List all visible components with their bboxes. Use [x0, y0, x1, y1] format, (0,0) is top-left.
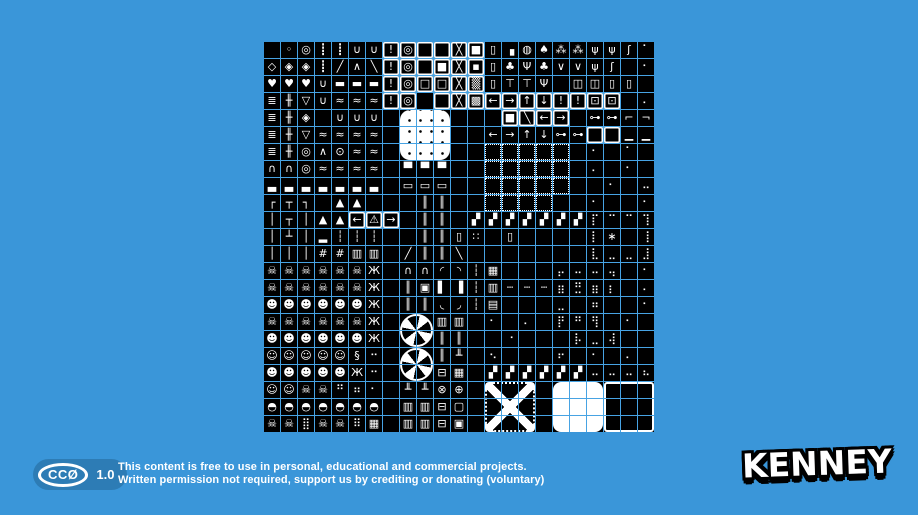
tile: ⠛ — [570, 314, 586, 330]
tile: ☠ — [332, 263, 348, 279]
tile: ▞ — [519, 212, 535, 228]
tile: ⠄ — [587, 161, 603, 177]
tile: ☺ — [298, 348, 314, 364]
tile: ⊶ — [604, 110, 620, 126]
tile: ∪ — [366, 42, 382, 58]
tile: ┄ — [536, 280, 552, 296]
tile: ⊙ — [332, 144, 348, 160]
tile: ▀ — [417, 161, 433, 177]
tile: ☻ — [332, 331, 348, 347]
tile: ⣸ — [638, 246, 654, 262]
tile: ┋ — [315, 42, 331, 58]
page: { "page": { "background": "#3a96d9" }, "… — [0, 0, 918, 515]
tile: ♠ — [536, 42, 552, 58]
tile — [621, 297, 637, 313]
tile: Ψ — [519, 59, 535, 75]
tile: ¬ — [638, 110, 654, 126]
tile: ⡟ — [553, 314, 569, 330]
tile: ⊡ — [587, 93, 603, 109]
tile — [621, 178, 637, 194]
tile: ↑ — [519, 127, 535, 143]
tile: ! — [383, 76, 399, 92]
tile: ⠤ — [587, 263, 603, 279]
tile: ┬ — [281, 195, 297, 211]
tile — [570, 229, 586, 245]
tile: → — [383, 212, 399, 228]
tile — [383, 178, 399, 194]
tile: ║ — [434, 246, 450, 262]
tile — [485, 331, 501, 347]
tile: ▃ — [332, 178, 348, 194]
tile: ▁ — [621, 127, 637, 143]
tile: ║ — [451, 331, 467, 347]
tile: ┌ — [264, 195, 280, 211]
tile: ← — [485, 93, 501, 109]
tile — [519, 229, 535, 245]
tile: ⡇ — [587, 229, 603, 245]
tile: ! — [383, 59, 399, 75]
tile: Ж — [366, 280, 382, 296]
tile: │ — [281, 246, 297, 262]
tile: ∪ — [332, 110, 348, 126]
tile — [383, 195, 399, 211]
tile: ← — [349, 212, 365, 228]
tile: ∨ — [553, 59, 569, 75]
tile: ≈ — [366, 127, 382, 143]
tile — [519, 246, 535, 262]
tile: ▭ — [417, 178, 433, 194]
tile: ◎ — [400, 93, 416, 109]
tile: ☺ — [281, 382, 297, 398]
tile — [536, 178, 552, 194]
tile: Ж — [366, 297, 382, 313]
tile: ☠ — [349, 314, 365, 330]
tile — [536, 348, 552, 364]
tile: ⠤ — [604, 365, 620, 381]
tile: ╳ — [451, 59, 467, 75]
tile: ☠ — [264, 314, 280, 330]
tile: ┄ — [519, 280, 535, 296]
tile — [383, 365, 399, 381]
tile: ⚠ — [366, 212, 382, 228]
tile: ≈ — [366, 161, 382, 177]
tile: ▞ — [485, 212, 501, 228]
tile — [366, 195, 382, 211]
tile: ╲ — [366, 59, 382, 75]
tile: ▃ — [315, 178, 331, 194]
tile: ☻ — [298, 331, 314, 347]
tile: ⠶ — [587, 297, 603, 313]
tile: ◈ — [298, 59, 314, 75]
tile: ◎ — [298, 144, 314, 160]
cc0-badge[interactable]: CCØ 1.0 — [33, 459, 127, 490]
tile: ʃ — [621, 42, 637, 58]
tile: ║ — [434, 229, 450, 245]
tile: ▦ — [451, 365, 467, 381]
tile: ◫ — [587, 76, 603, 92]
tile: ♣ — [502, 59, 518, 75]
tile: ╫ — [281, 110, 297, 126]
fan-bottom — [400, 348, 433, 381]
tile — [468, 144, 484, 160]
cc0-oval: CCØ — [38, 463, 88, 487]
tile — [570, 178, 586, 194]
license-line-1: This content is free to use in personal,… — [118, 461, 544, 474]
tile — [468, 382, 484, 398]
tile: ψ — [587, 42, 603, 58]
tile: ⠂ — [587, 348, 603, 364]
tile: ☠ — [315, 314, 331, 330]
tile: ≣ — [264, 144, 280, 160]
tile: ☺ — [332, 348, 348, 364]
tile: ∩ — [417, 263, 433, 279]
tile — [400, 212, 416, 228]
tile: ║ — [434, 212, 450, 228]
tile — [570, 195, 586, 211]
license-text: This content is free to use in personal,… — [118, 461, 544, 487]
tile: ⠤ — [570, 263, 586, 279]
tile — [383, 127, 399, 143]
tile — [638, 314, 654, 330]
tile — [502, 297, 518, 313]
tile: ◦ — [281, 42, 297, 58]
tile: ▞ — [502, 212, 518, 228]
tile: ⠂ — [621, 314, 637, 330]
tile: ▥ — [434, 314, 450, 330]
tile: ⣛ — [570, 280, 586, 296]
tile — [570, 110, 586, 126]
tile: ≈ — [366, 144, 382, 160]
tile: ☻ — [349, 331, 365, 347]
tile: ⊟ — [434, 399, 450, 415]
tile — [383, 263, 399, 279]
tile — [383, 246, 399, 262]
tile: ╫ — [281, 144, 297, 160]
tile: Ψ — [536, 76, 552, 92]
tile — [468, 416, 484, 432]
tile: ▞ — [570, 212, 586, 228]
tile — [604, 161, 620, 177]
tile: ⠁ — [638, 42, 654, 58]
tile: ☻ — [315, 365, 331, 381]
tile: │ — [298, 246, 314, 262]
tile — [451, 110, 467, 126]
tile — [468, 399, 484, 415]
license-line-2: Written permission not required, support… — [118, 474, 544, 487]
tile — [621, 280, 637, 296]
tile: ┬ — [281, 212, 297, 228]
tile: ☠ — [298, 263, 314, 279]
tile: ▯ — [621, 76, 637, 92]
tile: ◎ — [400, 76, 416, 92]
tile — [434, 93, 450, 109]
tile: ╨ — [451, 348, 467, 364]
tile: ⠂ — [638, 59, 654, 75]
tile: ▁ — [638, 127, 654, 143]
tile — [468, 348, 484, 364]
tile: ╫ — [281, 127, 297, 143]
tile — [383, 297, 399, 313]
tile: ⠄ — [638, 93, 654, 109]
tile — [604, 195, 620, 211]
tile: ⁂ — [553, 42, 569, 58]
tile: ▞ — [553, 365, 569, 381]
tile: ⡆ — [604, 280, 620, 296]
tile — [502, 178, 518, 194]
tile: ┆ — [468, 297, 484, 313]
tile: ≈ — [332, 127, 348, 143]
tile: ↓ — [536, 93, 552, 109]
tile: ╲ — [451, 246, 467, 262]
tile: ⌐ — [621, 110, 637, 126]
tile: ⠤ — [587, 365, 603, 381]
tile — [485, 161, 501, 177]
tile: ┴ — [281, 229, 297, 245]
tile: ⢼ — [604, 331, 620, 347]
grid-panel — [604, 382, 654, 432]
tile: ◜ — [434, 263, 450, 279]
tile — [553, 144, 569, 160]
tile: ⊕ — [451, 382, 467, 398]
tile: ! — [383, 93, 399, 109]
tile: ☻ — [264, 365, 280, 381]
tile — [502, 246, 518, 262]
tile: ▞ — [519, 365, 535, 381]
tile: § — [349, 348, 365, 364]
tile — [604, 144, 620, 160]
tile: ⣇ — [587, 246, 603, 262]
tile: ☻ — [315, 331, 331, 347]
tile — [638, 331, 654, 347]
tile: ▪ — [468, 59, 484, 75]
tile — [536, 195, 552, 211]
tile — [519, 161, 535, 177]
tile: ⠦ — [638, 365, 654, 381]
white-panel — [553, 382, 603, 432]
tile: ▀ — [434, 161, 450, 177]
tile: ☠ — [298, 382, 314, 398]
tile: ⣀ — [621, 246, 637, 262]
tile: ┆ — [468, 280, 484, 296]
tile: ≣ — [264, 127, 280, 143]
tile: # — [315, 246, 331, 262]
tile: ☠ — [281, 416, 297, 432]
tile: ☠ — [315, 280, 331, 296]
tile: ▯ — [604, 76, 620, 92]
tile: ▞ — [536, 212, 552, 228]
tile: ∪ — [349, 110, 365, 126]
tile: ▞ — [536, 365, 552, 381]
tile: ▣ — [417, 280, 433, 296]
tile: ◓ — [281, 399, 297, 415]
tile: ∧ — [349, 59, 365, 75]
tile — [553, 178, 569, 194]
tile: ⢻ — [587, 314, 603, 330]
tile: ∩ — [281, 161, 297, 177]
tile — [536, 229, 552, 245]
tile: ← — [536, 110, 552, 126]
tile: ! — [553, 93, 569, 109]
tile: ☻ — [281, 297, 297, 313]
tile: ≈ — [349, 127, 365, 143]
tile: ▬ — [366, 76, 382, 92]
tile — [621, 93, 637, 109]
tile — [621, 331, 637, 347]
tile — [502, 161, 518, 177]
tile: ⣿ — [298, 416, 314, 432]
tile: ◓ — [332, 399, 348, 415]
tile — [621, 229, 637, 245]
tile: ≈ — [332, 161, 348, 177]
tile: ☻ — [298, 297, 314, 313]
tile: ◓ — [349, 399, 365, 415]
tile: ║ — [417, 195, 433, 211]
tile: ▢ — [451, 399, 467, 415]
tile — [519, 331, 535, 347]
tile: ║ — [417, 229, 433, 245]
tile: ▣ — [451, 416, 467, 432]
tile: │ — [298, 229, 314, 245]
tile: ▌ — [434, 280, 450, 296]
tile — [536, 161, 552, 177]
tile: ☠ — [349, 263, 365, 279]
cc0-label: CCØ — [48, 467, 78, 482]
tile: ∪ — [349, 42, 365, 58]
tile — [400, 195, 416, 211]
tile: ♥ — [298, 76, 314, 92]
tile — [604, 314, 620, 330]
tile: ◈ — [281, 59, 297, 75]
tile: ▥ — [349, 246, 365, 262]
tile — [638, 348, 654, 364]
tile — [638, 144, 654, 160]
tile: │ — [264, 212, 280, 228]
tile: ▒ — [468, 76, 484, 92]
tile: ◓ — [366, 399, 382, 415]
tile: ▃ — [366, 178, 382, 194]
tile — [570, 144, 586, 160]
tile — [621, 195, 637, 211]
tile: ⊶ — [570, 127, 586, 143]
tile: ║ — [417, 246, 433, 262]
tile — [451, 161, 467, 177]
tile: ▯ — [485, 76, 501, 92]
tile — [553, 76, 569, 92]
tile: ♣ — [536, 59, 552, 75]
tile — [485, 246, 501, 262]
tile: ⠿ — [349, 416, 365, 432]
tile — [468, 246, 484, 262]
tile: ║ — [400, 297, 416, 313]
tile: ┋ — [315, 59, 331, 75]
tile: ∪ — [315, 93, 331, 109]
tile — [451, 212, 467, 228]
tile: ∪ — [366, 110, 382, 126]
tile: ☠ — [281, 263, 297, 279]
tile: ║ — [434, 348, 450, 364]
tile: ⊶ — [587, 110, 603, 126]
tile: ▥ — [485, 280, 501, 296]
tile: ╨ — [417, 382, 433, 398]
tile: ┋ — [332, 42, 348, 58]
tile — [519, 144, 535, 160]
tile: ⊟ — [434, 416, 450, 432]
tile: ∗ — [604, 229, 620, 245]
tile — [536, 314, 552, 330]
tile — [621, 59, 637, 75]
tile: ▯ — [485, 59, 501, 75]
tile — [570, 297, 586, 313]
tile — [553, 195, 569, 211]
tile: ∩ — [264, 161, 280, 177]
fan-top — [400, 314, 433, 347]
tile: ☠ — [298, 280, 314, 296]
tile: ▥ — [451, 314, 467, 330]
tile: ψ — [587, 59, 603, 75]
tile: ◓ — [298, 399, 314, 415]
tile: # — [332, 246, 348, 262]
tile: ≣ — [264, 110, 280, 126]
tile: ⠂ — [638, 297, 654, 313]
tile: ▽ — [298, 93, 314, 109]
tile: ⢹ — [638, 212, 654, 228]
tile: ☠ — [298, 314, 314, 330]
tile: ⊶ — [553, 127, 569, 143]
tile: ⠂ — [587, 195, 603, 211]
tile: ☻ — [298, 365, 314, 381]
tile: ☠ — [315, 263, 331, 279]
tile — [485, 178, 501, 194]
cc0-version: 1.0 — [96, 467, 114, 482]
kenney-logo: KENNEY — [742, 441, 893, 485]
tile: ⠶ — [349, 382, 365, 398]
tile: ☠ — [315, 382, 331, 398]
tile: ┐ — [298, 195, 314, 211]
tile — [604, 127, 620, 143]
tile: ∷ — [468, 229, 484, 245]
tile — [383, 399, 399, 415]
tile: ▯ — [502, 229, 518, 245]
tile: ⡏ — [587, 212, 603, 228]
tile: ⠖ — [553, 348, 569, 364]
tile: ◈ — [298, 110, 314, 126]
tile — [536, 416, 552, 432]
tile — [451, 195, 467, 211]
tile: ≈ — [349, 93, 365, 109]
tile: ≣ — [264, 93, 280, 109]
tile — [553, 246, 569, 262]
tile: ⠐ — [502, 331, 518, 347]
tile: ⠂ — [604, 178, 620, 194]
tile — [383, 348, 399, 364]
tile: ╳ — [451, 42, 467, 58]
tile: ▞ — [485, 365, 501, 381]
tile: ▲ — [349, 195, 365, 211]
tile: ▦ — [485, 263, 501, 279]
tile: ∨ — [570, 59, 586, 75]
tile: ■ — [468, 42, 484, 58]
tile: ┆ — [468, 263, 484, 279]
tile — [553, 161, 569, 177]
tile: Ж — [366, 331, 382, 347]
tile: ◓ — [315, 399, 331, 415]
tile: ≈ — [349, 161, 365, 177]
tile: ▞ — [502, 365, 518, 381]
tile: ☺ — [264, 348, 280, 364]
tile: ▭ — [400, 178, 416, 194]
tile: ☠ — [264, 280, 280, 296]
tile — [502, 195, 518, 211]
